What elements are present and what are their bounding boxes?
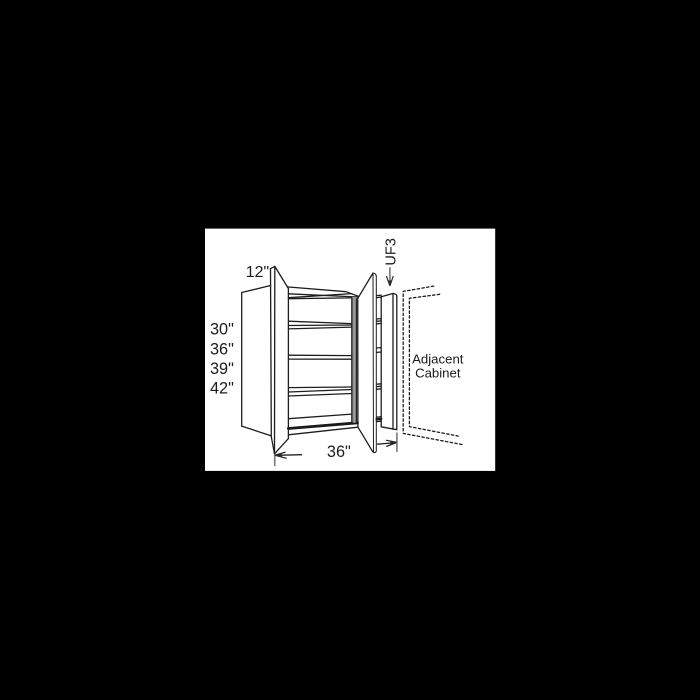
svg-text:42": 42" <box>210 379 234 397</box>
svg-text:Cabinet: Cabinet <box>415 366 461 381</box>
svg-text:36": 36" <box>210 340 234 358</box>
svg-text:UF3: UF3 <box>383 238 399 266</box>
svg-text:39": 39" <box>210 360 234 378</box>
svg-text:Adjacent: Adjacent <box>412 351 464 366</box>
svg-text:12": 12" <box>246 264 269 281</box>
svg-text:30": 30" <box>210 320 234 338</box>
svg-text:36": 36" <box>327 443 351 461</box>
